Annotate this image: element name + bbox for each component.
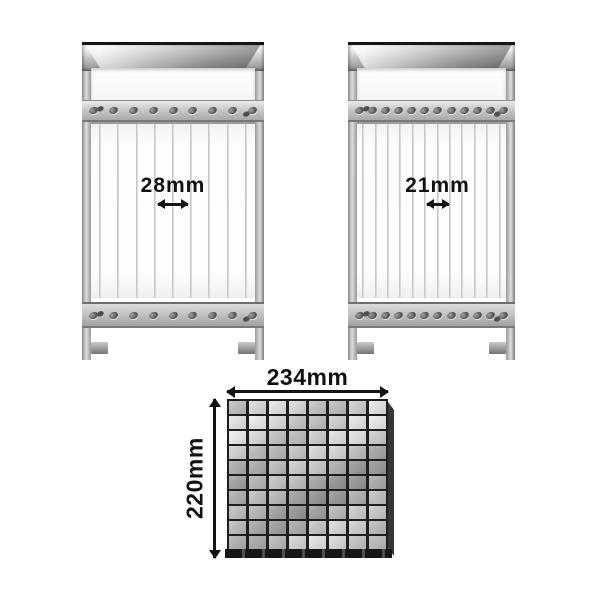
grid-cell: [249, 476, 266, 489]
horizontal-double-arrow-icon: [427, 203, 449, 206]
grid-cell: [289, 476, 306, 489]
grid-cell: [249, 506, 266, 519]
screw: [419, 106, 430, 116]
wire: [117, 124, 119, 298]
wire: [486, 124, 488, 298]
screw: [168, 106, 179, 116]
screw: [498, 106, 509, 116]
screw: [380, 310, 391, 320]
horizontal-double-arrow-icon: [158, 203, 188, 206]
screw: [88, 310, 99, 320]
grid-cell: [269, 401, 286, 414]
screw: [148, 106, 159, 116]
grid-cell: [269, 491, 286, 504]
grid-cell: [289, 401, 306, 414]
grid-cell: [349, 521, 366, 534]
grid-cell: [289, 536, 306, 549]
height-dimension-arrow-icon: [213, 399, 216, 558]
screw: [88, 106, 99, 116]
guitar-frame-28mm: 28mm: [82, 42, 264, 360]
frame-1-screwbar-top: [348, 100, 515, 122]
frame-0-wires: [91, 122, 255, 298]
screw: [108, 310, 119, 320]
grid-cell: [329, 491, 346, 504]
grid-cell: [329, 476, 346, 489]
grid-cell: [309, 506, 326, 519]
screw: [446, 106, 457, 116]
frame-handle-window: [91, 68, 255, 100]
grid-bottom-edge: [225, 549, 392, 558]
grid-cell: [329, 446, 346, 459]
grid-cell: [229, 491, 246, 504]
grid-cell: [309, 446, 326, 459]
screw: [419, 310, 430, 320]
grid-cell: [229, 446, 246, 459]
wire: [499, 124, 501, 298]
screw: [354, 310, 365, 320]
grid-cell: [229, 401, 246, 414]
grid-cell: [329, 401, 346, 414]
wire: [227, 124, 229, 298]
wire: [399, 124, 401, 298]
grid-cell: [369, 491, 386, 504]
wire: [190, 124, 192, 298]
grid-cell: [269, 461, 286, 474]
grid-cell: [349, 476, 366, 489]
screw: [472, 106, 483, 116]
grid-cell: [349, 446, 366, 459]
screw: [128, 106, 139, 116]
grid-cell: [249, 431, 266, 444]
grid-cell: [349, 536, 366, 549]
grid-cell: [349, 401, 366, 414]
screw: [446, 310, 457, 320]
frame-handle-window: [357, 68, 506, 100]
grid-cell: [229, 461, 246, 474]
screw: [354, 106, 365, 116]
screw: [485, 106, 496, 116]
grid-cell: [329, 536, 346, 549]
wire: [136, 124, 138, 298]
screw: [393, 106, 404, 116]
frame-0-screwbar-bottom: [82, 302, 264, 328]
screw: [380, 106, 391, 116]
grid-cell: [229, 506, 246, 519]
screw: [227, 106, 238, 116]
grid-cell: [249, 536, 266, 549]
grid-cell: [309, 401, 326, 414]
grid-width-label: 234mm: [227, 364, 388, 391]
grid-cell: [289, 506, 306, 519]
screw: [367, 106, 378, 116]
grid-cell: [369, 416, 386, 429]
grid-cell: [269, 536, 286, 549]
grid-cell: [349, 431, 366, 444]
frame-top-bar: [82, 42, 264, 71]
screw: [459, 106, 470, 116]
grid-cell: [249, 461, 266, 474]
grid-cell: [309, 416, 326, 429]
grid-cell: [249, 491, 266, 504]
grid-cell: [369, 431, 386, 444]
grid-cell: [309, 476, 326, 489]
frame-foot-right: [489, 342, 506, 354]
grid-cell: [269, 446, 286, 459]
grid-cell: [269, 521, 286, 534]
grid-cell: [249, 416, 266, 429]
grid-cell: [349, 506, 366, 519]
frame-foot-left: [357, 342, 374, 354]
screw: [128, 310, 139, 320]
screw: [432, 106, 443, 116]
wire: [99, 124, 101, 298]
frame-0-screwbar-top: [82, 100, 264, 122]
screw: [247, 310, 258, 320]
grid-cell: [249, 521, 266, 534]
width-dimension-arrow-icon: [227, 390, 388, 393]
grid-cell: [309, 536, 326, 549]
grid-cell: [289, 491, 306, 504]
grid-cell: [309, 521, 326, 534]
wire: [437, 124, 439, 298]
grid-cell: [269, 506, 286, 519]
wire-spacing-label: 21mm: [354, 174, 521, 198]
wire: [154, 124, 156, 298]
wire: [208, 124, 210, 298]
screw: [485, 310, 496, 320]
screw: [168, 310, 179, 320]
screw: [108, 106, 119, 116]
grid-cell: [309, 461, 326, 474]
grid-cell: [249, 401, 266, 414]
frame-1-wires: [357, 122, 506, 298]
wire-spacing-label: 28mm: [82, 174, 264, 198]
screw: [207, 310, 218, 320]
grid-cell: [289, 461, 306, 474]
wire: [424, 124, 426, 298]
wire: [412, 124, 414, 298]
screw: [393, 310, 404, 320]
grid-cell: [369, 476, 386, 489]
screw: [498, 310, 509, 320]
frame-1-screwbar-bottom: [348, 302, 515, 328]
grid-cell: [329, 416, 346, 429]
grid-cell: [309, 431, 326, 444]
screw: [247, 106, 258, 116]
base-wire-grid: [227, 399, 388, 551]
wire: [449, 124, 451, 298]
grid-cell: [329, 521, 346, 534]
grid-cell: [309, 491, 326, 504]
grid-cell: [289, 431, 306, 444]
grid-cell: [289, 446, 306, 459]
grid-cell: [269, 416, 286, 429]
wire: [362, 124, 364, 298]
grid-cell: [289, 521, 306, 534]
grid-cell: [369, 401, 386, 414]
grid-cell: [269, 476, 286, 489]
wire: [172, 124, 174, 298]
screw: [187, 310, 198, 320]
wire: [474, 124, 476, 298]
grid-cell: [369, 461, 386, 474]
guitar-frame-21mm: 21mm: [348, 42, 515, 360]
grid-cell: [349, 491, 366, 504]
grid-cell: [289, 416, 306, 429]
grid-cell: [369, 506, 386, 519]
base-grid-cells: [227, 399, 388, 551]
grid-cell: [269, 431, 286, 444]
grid-cell: [229, 431, 246, 444]
grid-right-edge: [388, 402, 394, 556]
screw: [432, 310, 443, 320]
wire: [375, 124, 377, 298]
grid-cell: [349, 461, 366, 474]
grid-cell: [229, 416, 246, 429]
frame-top-bar: [348, 42, 515, 71]
wire: [461, 124, 463, 298]
product-dimension-image: 28mm 21mm 234mm 220mm: [0, 0, 600, 600]
screw: [367, 310, 378, 320]
screw: [207, 106, 218, 116]
screw: [187, 106, 198, 116]
screw: [148, 310, 159, 320]
grid-cell: [229, 521, 246, 534]
grid-cell: [369, 521, 386, 534]
frame-foot-left: [91, 342, 108, 354]
grid-cell: [369, 446, 386, 459]
screw: [472, 310, 483, 320]
grid-cell: [229, 536, 246, 549]
grid-height-label: 220mm: [180, 399, 210, 558]
frame-foot-right: [238, 342, 255, 354]
grid-cell: [229, 476, 246, 489]
grid-cell: [329, 431, 346, 444]
screw: [406, 106, 417, 116]
grid-cell: [329, 461, 346, 474]
grid-cell: [349, 416, 366, 429]
grid-cell: [249, 446, 266, 459]
wire: [387, 124, 389, 298]
wire: [245, 124, 247, 298]
grid-cell: [369, 536, 386, 549]
screw: [227, 310, 238, 320]
grid-cell: [329, 506, 346, 519]
screw: [406, 310, 417, 320]
screw: [459, 310, 470, 320]
